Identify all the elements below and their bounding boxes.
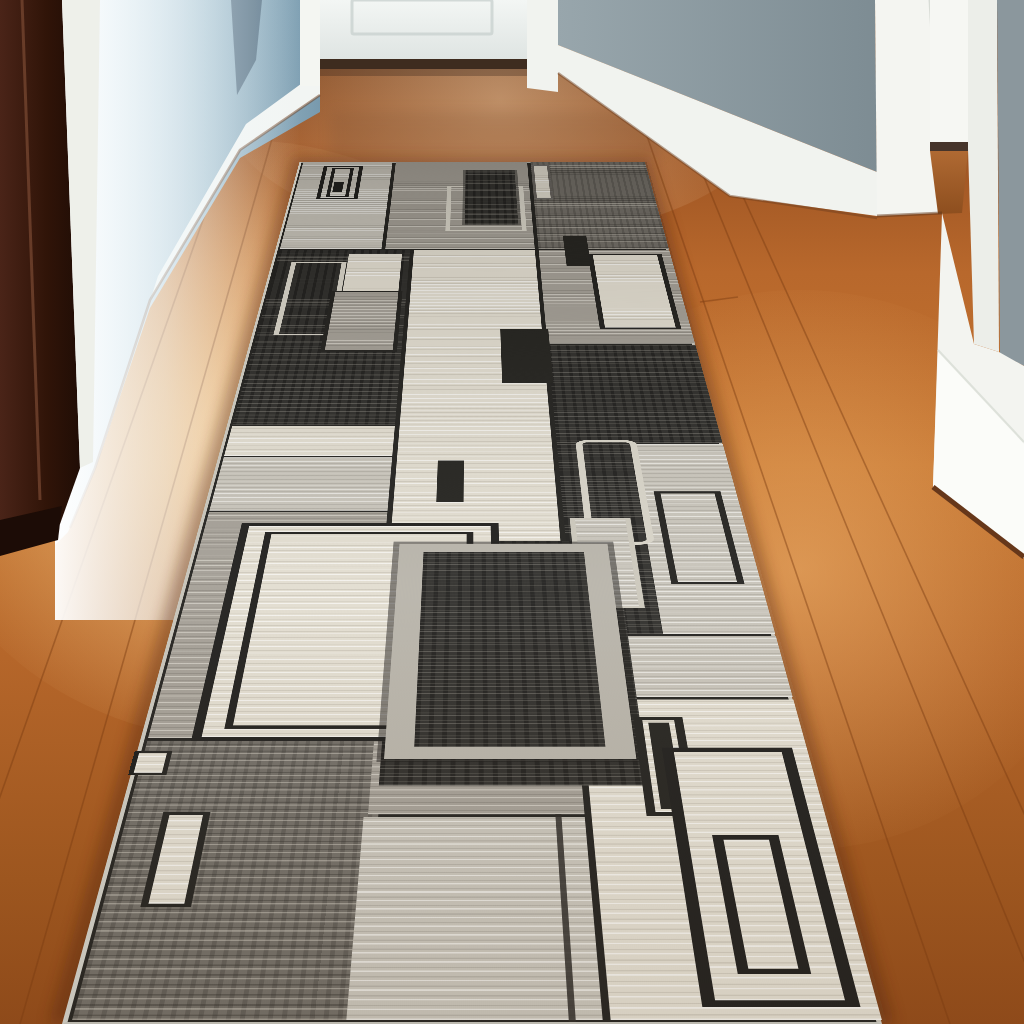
door-threshold-shadow	[318, 68, 532, 76]
hallway-photo	[0, 0, 1024, 1024]
door-casing-right	[527, 0, 558, 92]
inner-room-threshold	[930, 142, 968, 151]
door-casing-left	[300, 0, 320, 86]
inner-room-door	[930, 0, 968, 148]
door-reflection	[330, 112, 660, 156]
right-casing-strip	[968, 0, 999, 352]
top-right-wall	[997, 0, 1024, 366]
door-threshold	[318, 59, 532, 69]
